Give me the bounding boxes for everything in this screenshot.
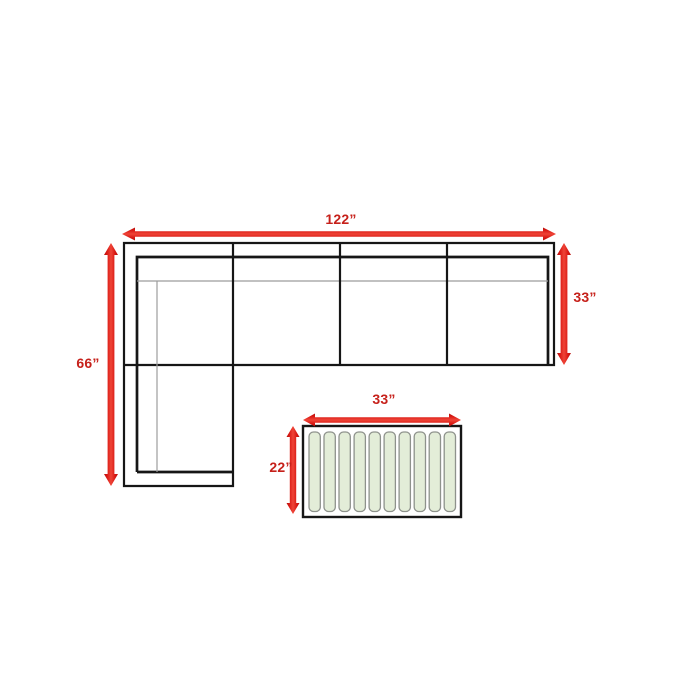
- table-slat: [429, 432, 440, 512]
- table-slat: [444, 432, 455, 512]
- sofa-depth-label: 33”: [573, 289, 596, 305]
- sofa-depth-arrow: [557, 243, 571, 365]
- table-slat: [399, 432, 410, 512]
- diagram-drawing: [0, 0, 700, 700]
- table-slat: [414, 432, 425, 512]
- table-slat: [354, 432, 365, 512]
- table-width-label: 33”: [372, 391, 395, 407]
- table-slat: [324, 432, 335, 512]
- coffee-table: [303, 426, 461, 517]
- table-slat: [384, 432, 395, 512]
- sofa-width-label: 122”: [325, 211, 356, 227]
- sofa-width-arrow: [122, 228, 556, 241]
- table-slat: [339, 432, 350, 512]
- table-slat: [309, 432, 320, 512]
- sofa-chaise-length-label: 66”: [76, 355, 99, 371]
- table-depth-label: 22”: [269, 459, 292, 475]
- sofa-chaise-length-arrow: [104, 243, 118, 486]
- table-width-arrow: [303, 414, 461, 427]
- table-slat: [369, 432, 380, 512]
- furniture-dimension-diagram: 122” 33” 66” 33” 22”: [0, 0, 700, 700]
